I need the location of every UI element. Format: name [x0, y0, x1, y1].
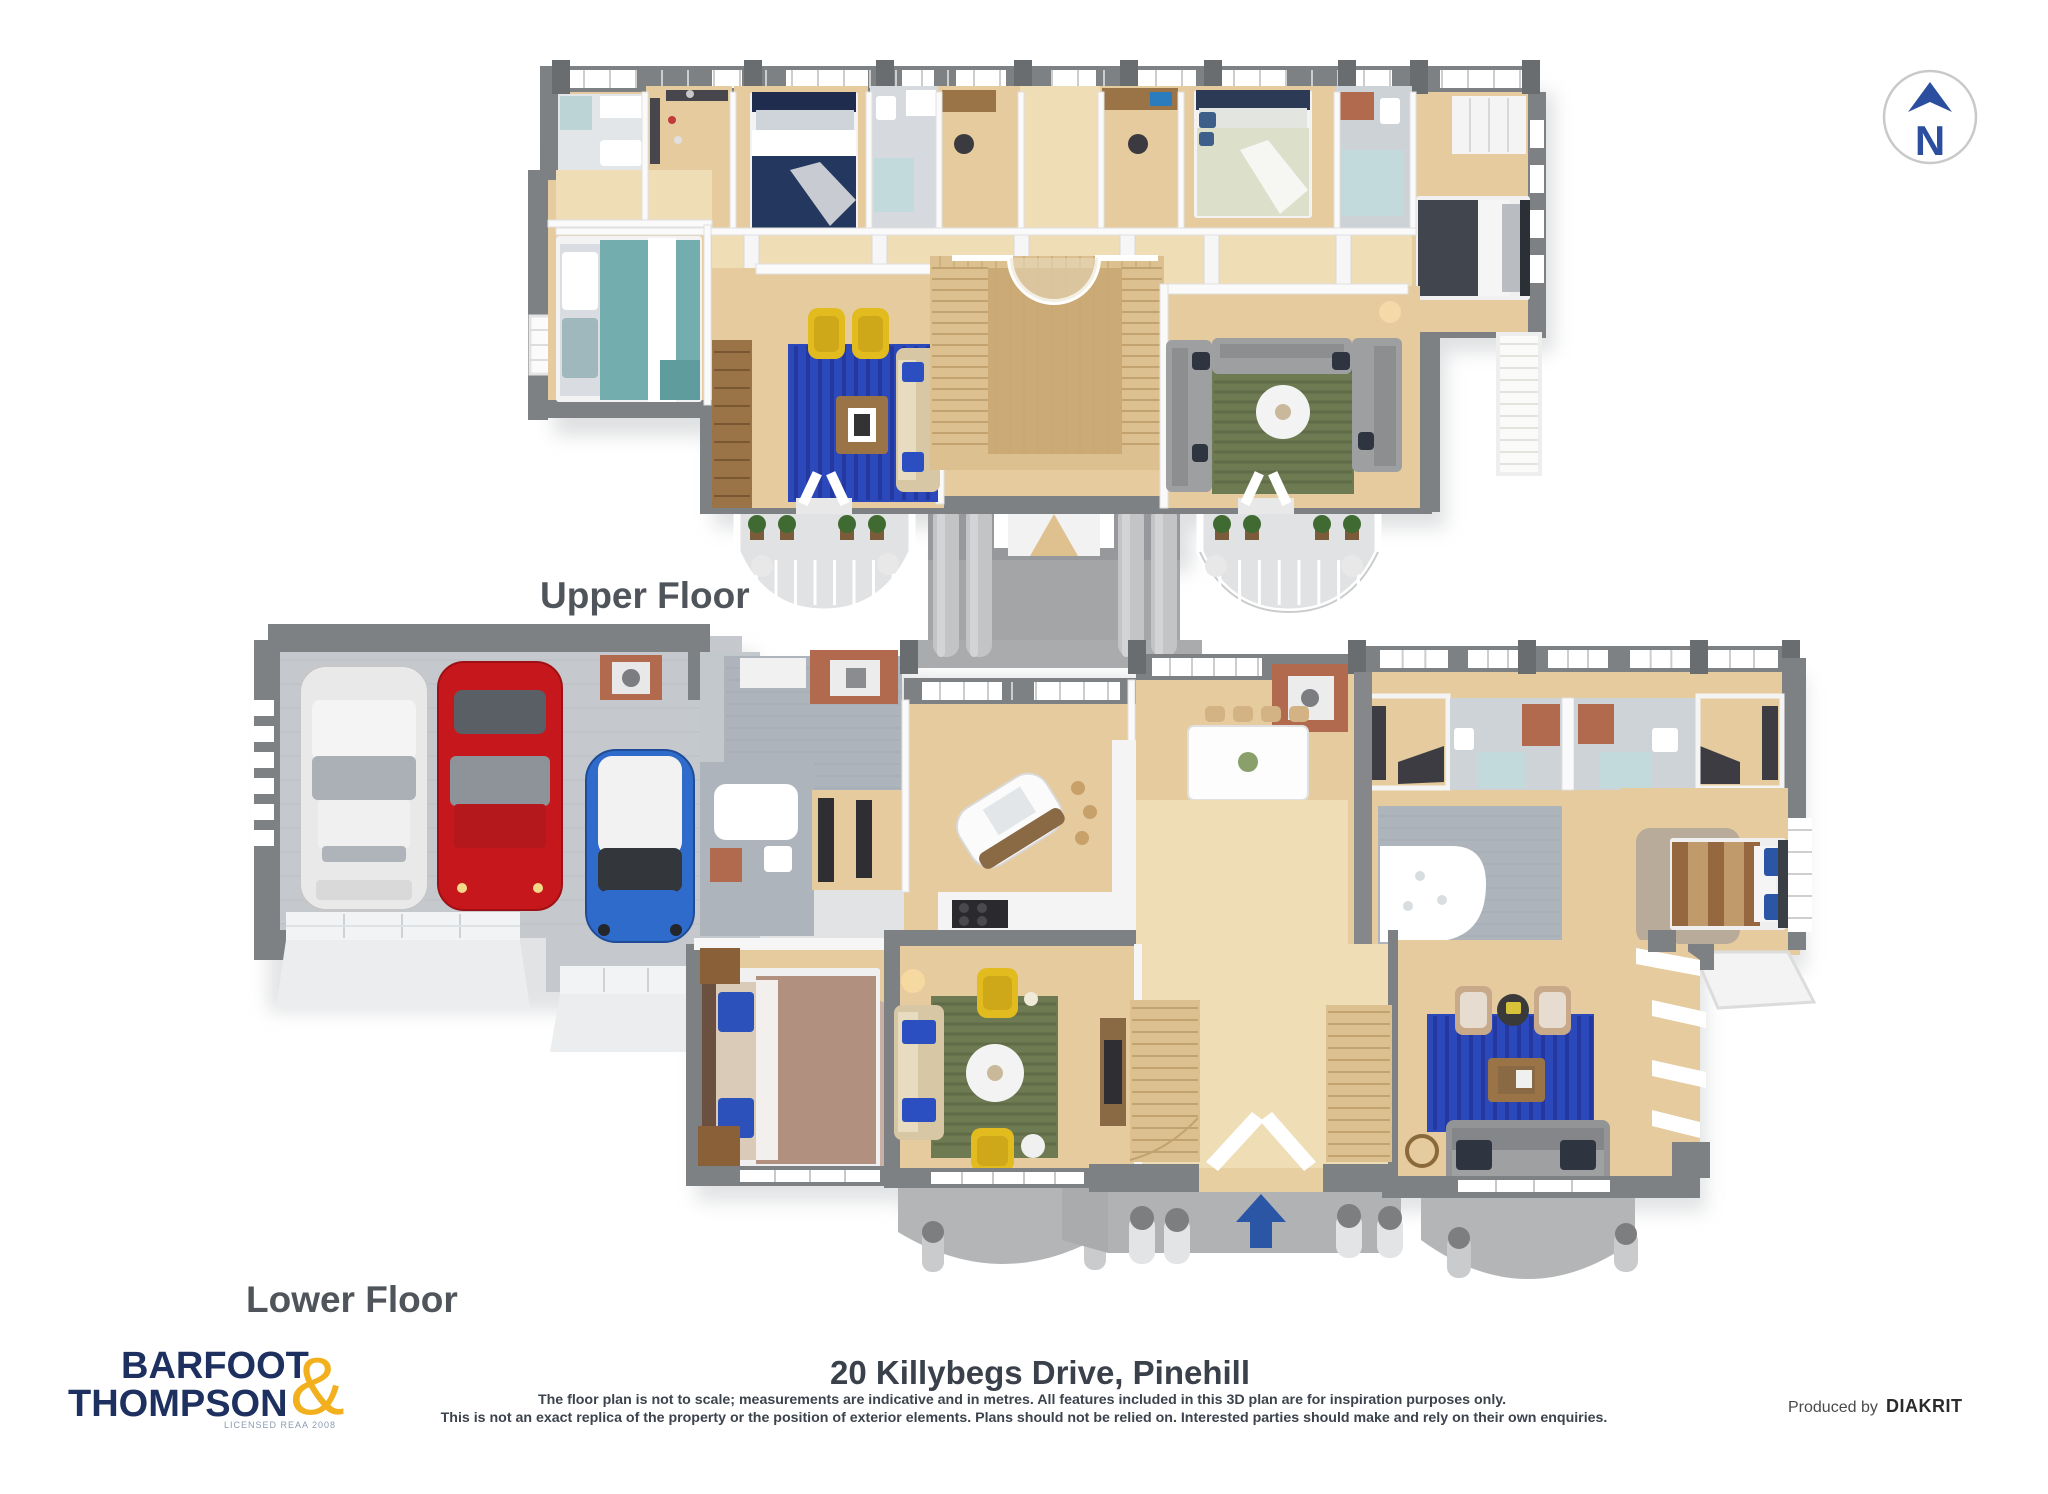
svg-text:N: N — [1915, 117, 1945, 164]
svg-text:LICENSED REAA 2008: LICENSED REAA 2008 — [224, 1420, 336, 1430]
svg-text:This is not an exact replica o: This is not an exact replica of the prop… — [441, 1410, 1608, 1426]
svg-text:DIAKRIT: DIAKRIT — [1886, 1396, 1963, 1416]
svg-text:20 Killybegs Drive, Pinehill: 20 Killybegs Drive, Pinehill — [830, 1354, 1250, 1391]
svg-text:Lower Floor: Lower Floor — [246, 1279, 458, 1320]
svg-text:Produced by: Produced by — [1788, 1399, 1878, 1416]
svg-text:Upper Floor: Upper Floor — [540, 575, 750, 616]
svg-text:BARFOOT: BARFOOT — [121, 1345, 309, 1387]
svg-text:The floor plan is not to scale: The floor plan is not to scale; measurem… — [538, 1392, 1506, 1408]
svg-text:THOMPSON: THOMPSON — [68, 1383, 288, 1425]
svg-text:&: & — [290, 1341, 345, 1432]
